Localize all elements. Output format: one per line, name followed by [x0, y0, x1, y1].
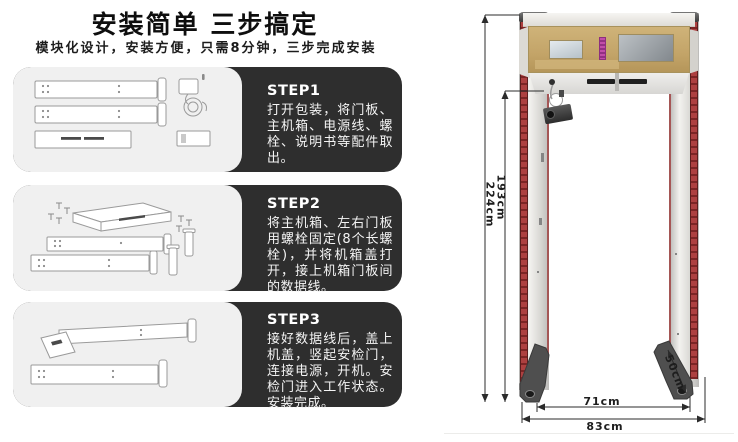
- product-photo: 224cm 193cm 50cm 71cm 83cm: [440, 0, 738, 442]
- page-title: 安装简单 三步搞定: [0, 5, 410, 41]
- center-bracket: [615, 73, 619, 91]
- step3-description: 接好数据线后，盖上机盖，竖起安检门，连接电源，开机。安检门进入工作状态。安装完成…: [267, 332, 393, 412]
- step1-text: STEP1 打开包装，将门板、主机箱、电源线、螺栓、说明书等配件取出。: [267, 83, 393, 167]
- dimension-outer-width: 83cm: [583, 420, 627, 433]
- protective-tape: [535, 60, 619, 69]
- step1-illustration-box: [13, 67, 242, 172]
- left-foot-hole: [526, 391, 535, 398]
- dimension-inner-width: 71cm: [580, 395, 624, 408]
- crossbar-top: [523, 13, 695, 27]
- step2-illustration-box: [13, 185, 242, 291]
- step3-label: STEP3: [267, 312, 393, 328]
- vent-slot: [587, 79, 615, 84]
- floor-shadow-line: [444, 433, 734, 434]
- camera-lens-icon: [546, 110, 555, 119]
- step2-illustration: [21, 191, 233, 283]
- step1-illustration: [21, 73, 233, 165]
- step1-label: STEP1: [267, 83, 393, 99]
- crossbar-underside: [529, 73, 689, 94]
- pillar-slot: [539, 218, 542, 225]
- step3-illustration-box: [13, 302, 242, 407]
- vent-slot: [619, 79, 647, 84]
- step1-description: 打开包装，将门板、主机箱、电源线、螺栓、说明书等配件取出。: [267, 103, 393, 167]
- control-head: [528, 26, 690, 73]
- step3-text: STEP3 接好数据线后，盖上机盖，竖起安检门，连接电源，开机。安检门进入工作状…: [267, 312, 393, 412]
- pillar-screw: [537, 271, 539, 273]
- step2-row: STEP2 将主机箱、左右门板用螺栓固定(8个长螺栓)，并将机箱盖打开，接上机箱…: [13, 185, 402, 291]
- step2-label: STEP2: [267, 196, 393, 212]
- left-pillar-inner-led: [547, 83, 549, 360]
- pillar-screw: [675, 253, 677, 255]
- camera-mount: [559, 90, 564, 97]
- right-pillar-inner-led: [669, 83, 671, 357]
- step2-description: 将主机箱、左右门板用螺栓固定(8个长螺栓)，并将机箱盖打开，接上机箱门板间的数据…: [267, 216, 393, 296]
- step2-text: STEP2 将主机箱、左右门板用螺栓固定(8个长螺栓)，并将机箱盖打开，接上机箱…: [267, 196, 393, 296]
- page-subtitle: 模块化设计，安装方便，只需8分钟，三步完成安装: [0, 37, 412, 56]
- lcd-screen: [549, 40, 583, 59]
- pillar-screw: [677, 333, 679, 335]
- dimension-inner-height: 193cm: [495, 175, 508, 219]
- pink-label: [599, 37, 606, 60]
- right-pillar-led-strip: [690, 22, 698, 379]
- step1-row: STEP1 打开包装，将门板、主机箱、电源线、螺栓、说明书等配件取出。: [13, 67, 402, 172]
- display-panel: [618, 34, 674, 62]
- installation-panel: 安装简单 三步搞定 模块化设计，安装方便，只需8分钟，三步完成安装: [0, 0, 440, 442]
- page: 安装简单 三步搞定 模块化设计，安装方便，只需8分钟，三步完成安装: [0, 0, 738, 442]
- pillar-slot: [541, 153, 544, 162]
- step3-row: STEP3 接好数据线后，盖上机盖，竖起安检门，连接电源，开机。安检门进入工作状…: [13, 302, 402, 407]
- step3-illustration: [21, 308, 233, 400]
